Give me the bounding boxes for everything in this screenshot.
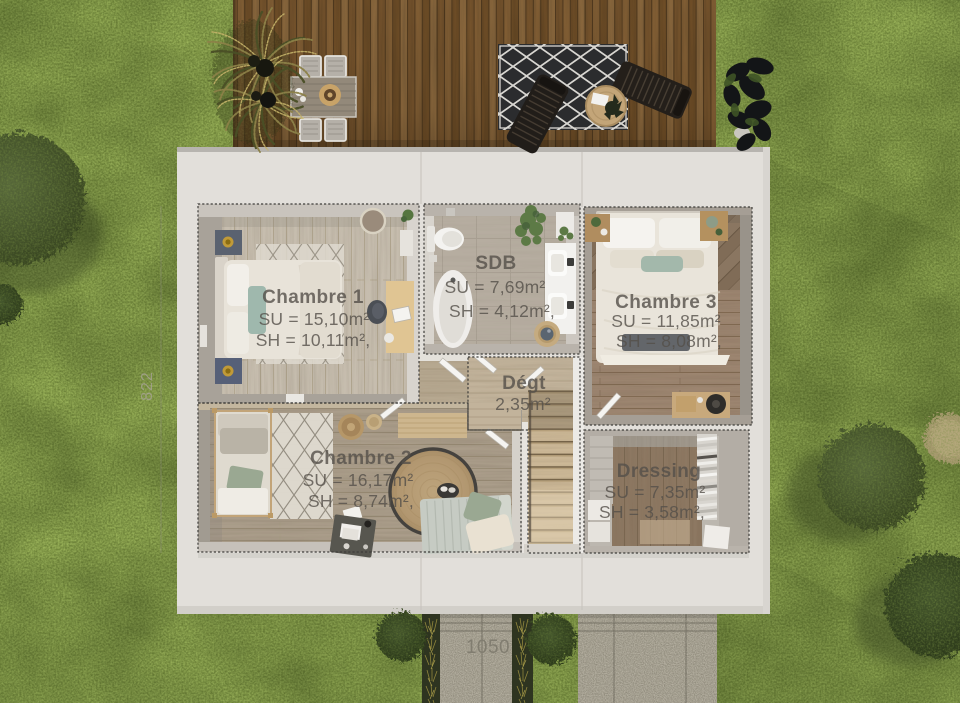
svg-text:SDB: SDB xyxy=(475,253,516,274)
svg-text:Dégt: Dégt xyxy=(502,373,546,394)
svg-text:SH = 8,08m²,: SH = 8,08m², xyxy=(616,331,722,351)
svg-text:Chambre 2: Chambre 2 xyxy=(310,448,412,469)
svg-text:2,35m²: 2,35m² xyxy=(495,394,551,414)
svg-text:SH = 10,11m²,: SH = 10,11m², xyxy=(256,330,371,350)
svg-text:Chambre 3: Chambre 3 xyxy=(615,292,717,313)
svg-text:SU = 7,69m²: SU = 7,69m² xyxy=(445,277,546,297)
svg-text:SU = 16,17m²: SU = 16,17m² xyxy=(303,470,414,490)
svg-text:Dressing: Dressing xyxy=(617,461,702,482)
svg-text:SH = 4,12m²,: SH = 4,12m², xyxy=(449,301,555,321)
svg-text:Chambre 1: Chambre 1 xyxy=(262,287,364,308)
svg-text:SU = 7,35m²: SU = 7,35m² xyxy=(605,482,706,502)
svg-text:1050: 1050 xyxy=(466,637,510,658)
svg-text:SH = 8,74m²,: SH = 8,74m², xyxy=(308,491,414,511)
svg-text:822: 822 xyxy=(139,371,156,401)
svg-text:SH = 3,58m²,: SH = 3,58m², xyxy=(599,502,705,522)
svg-text:SU = 11,85m²: SU = 11,85m² xyxy=(611,311,721,331)
svg-text:SU = 15,10m²: SU = 15,10m² xyxy=(259,309,370,329)
